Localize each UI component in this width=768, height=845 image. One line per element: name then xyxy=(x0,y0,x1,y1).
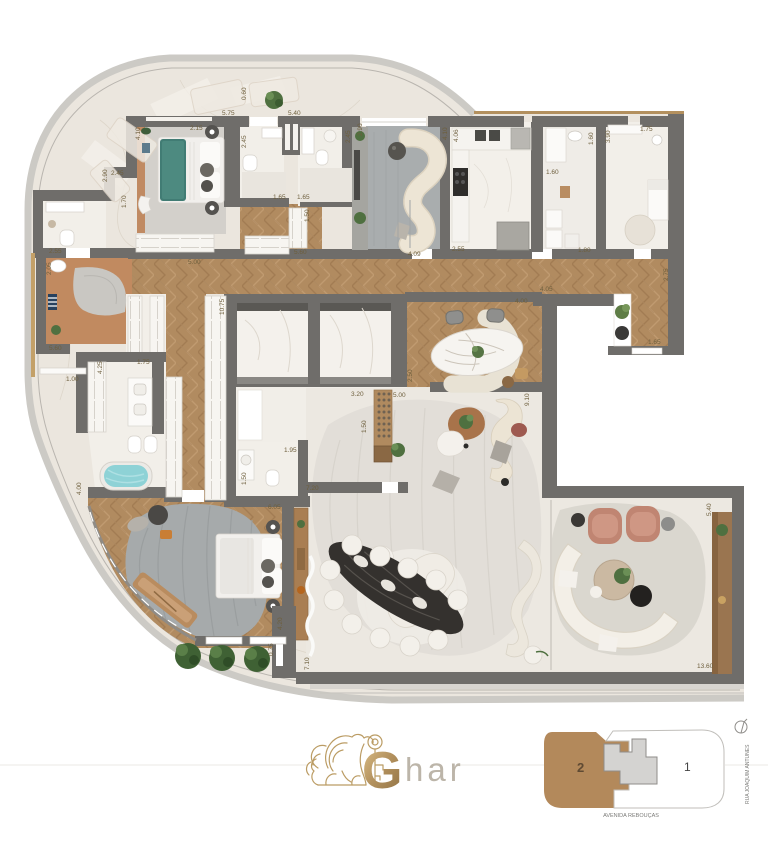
svg-text:7.10: 7.10 xyxy=(304,657,311,670)
svg-text:5.00: 5.00 xyxy=(393,392,406,399)
svg-text:9.10: 9.10 xyxy=(524,393,531,406)
svg-text:2: 2 xyxy=(577,760,584,775)
svg-text:1.75: 1.75 xyxy=(640,126,653,133)
svg-text:1.50: 1.50 xyxy=(241,472,248,485)
svg-text:2.45: 2.45 xyxy=(345,130,352,143)
svg-text:4.09: 4.09 xyxy=(408,251,421,258)
svg-text:1.00: 1.00 xyxy=(66,376,79,383)
svg-text:4.00: 4.00 xyxy=(76,482,83,495)
svg-text:har: har xyxy=(405,751,465,788)
svg-text:AVENIDA REBOUÇAS: AVENIDA REBOUÇAS xyxy=(603,813,659,819)
svg-text:1.60: 1.60 xyxy=(546,169,559,176)
svg-text:1.65: 1.65 xyxy=(273,194,286,201)
svg-text:1.50: 1.50 xyxy=(361,420,368,433)
svg-text:1.65: 1.65 xyxy=(297,194,310,201)
svg-text:G: G xyxy=(362,742,402,800)
svg-text:4.20: 4.20 xyxy=(277,617,284,630)
svg-text:2.45: 2.45 xyxy=(111,170,124,177)
svg-text:0.75: 0.75 xyxy=(268,643,275,656)
svg-text:2.15: 2.15 xyxy=(190,125,203,132)
svg-text:3.20: 3.20 xyxy=(351,391,364,398)
svg-text:4.25: 4.25 xyxy=(97,361,104,374)
svg-text:1.50: 1.50 xyxy=(304,209,311,222)
svg-text:5.60: 5.60 xyxy=(49,345,62,352)
svg-text:4.10: 4.10 xyxy=(135,127,142,140)
svg-text:4.00: 4.00 xyxy=(515,298,528,305)
svg-text:2.05: 2.05 xyxy=(46,262,53,275)
svg-text:4.05: 4.05 xyxy=(540,286,553,293)
svg-text:0.60: 0.60 xyxy=(241,87,248,100)
svg-text:5.40: 5.40 xyxy=(706,503,713,516)
svg-text:3.90: 3.90 xyxy=(605,130,612,143)
svg-text:2.55: 2.55 xyxy=(49,248,62,255)
svg-text:4.10: 4.10 xyxy=(442,127,449,140)
svg-text:4.06: 4.06 xyxy=(453,129,460,142)
svg-text:5.75: 5.75 xyxy=(222,110,235,117)
svg-text:2.55: 2.55 xyxy=(452,246,465,253)
svg-text:5.00: 5.00 xyxy=(188,259,201,266)
svg-text:6.05: 6.05 xyxy=(268,504,281,511)
svg-text:1.60: 1.60 xyxy=(588,132,595,145)
svg-text:5.40: 5.40 xyxy=(288,110,301,117)
svg-text:1.65: 1.65 xyxy=(648,339,661,346)
svg-text:2.50: 2.50 xyxy=(407,369,414,382)
svg-text:1.75: 1.75 xyxy=(137,359,150,366)
svg-text:1.70: 1.70 xyxy=(121,195,128,208)
svg-text:10.75: 10.75 xyxy=(219,298,226,315)
svg-text:7.20: 7.20 xyxy=(306,485,319,492)
svg-text:1.80: 1.80 xyxy=(578,247,591,254)
svg-text:2.90: 2.90 xyxy=(102,169,109,182)
svg-text:5.60: 5.60 xyxy=(294,249,307,256)
svg-text:1.95: 1.95 xyxy=(284,447,297,454)
svg-text:2.90: 2.90 xyxy=(357,123,364,136)
svg-text:1: 1 xyxy=(684,760,691,774)
svg-text:2.45: 2.45 xyxy=(241,135,248,148)
svg-text:2.75: 2.75 xyxy=(663,268,670,281)
svg-text:13.60: 13.60 xyxy=(697,663,714,670)
svg-text:RUA JOAQUIM ANTUNES: RUA JOAQUIM ANTUNES xyxy=(745,744,751,804)
